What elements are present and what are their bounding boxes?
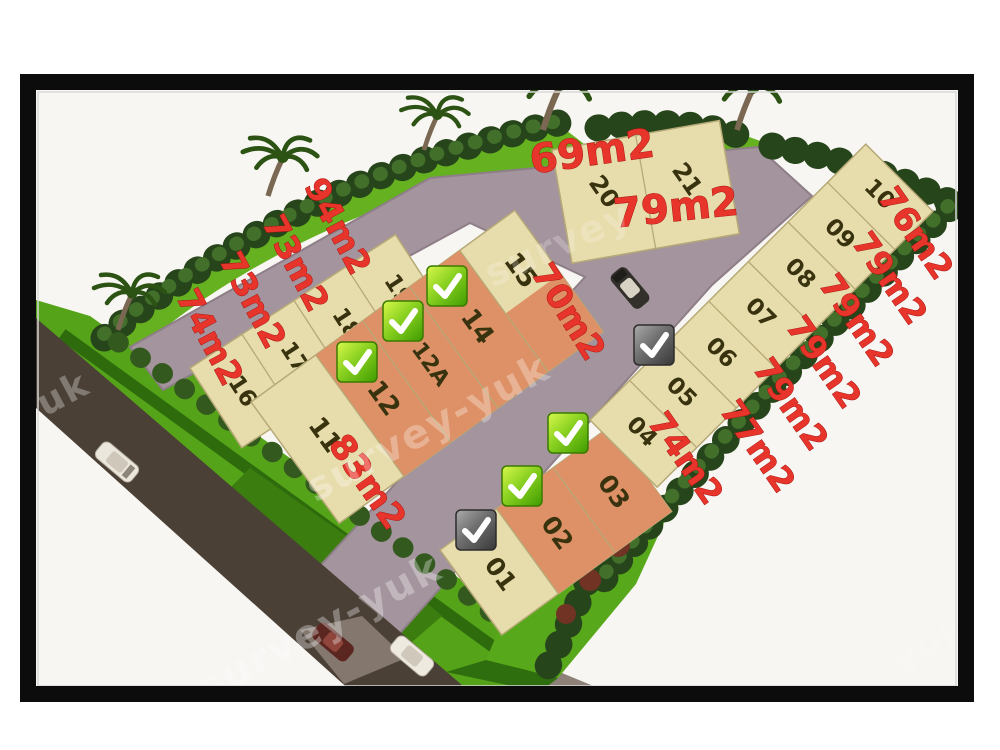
green-check-icon-lot-12A	[383, 301, 423, 341]
green-check-icon-lot-12	[337, 342, 377, 382]
green-check-icon-lot-03	[548, 413, 588, 453]
green-check-icon-lot-02	[502, 466, 542, 506]
green-check-icon-lot-14	[427, 266, 467, 306]
gray-check-icon-lot-01	[456, 510, 496, 550]
gray-check-icon-lot-06	[634, 325, 674, 365]
site-plan-image: 16 17 18 19 20 21 11 12 12A 14 15	[0, 0, 1000, 750]
site-plan-canvas: 16 17 18 19 20 21 11 12 12A 14 15	[0, 0, 1000, 750]
